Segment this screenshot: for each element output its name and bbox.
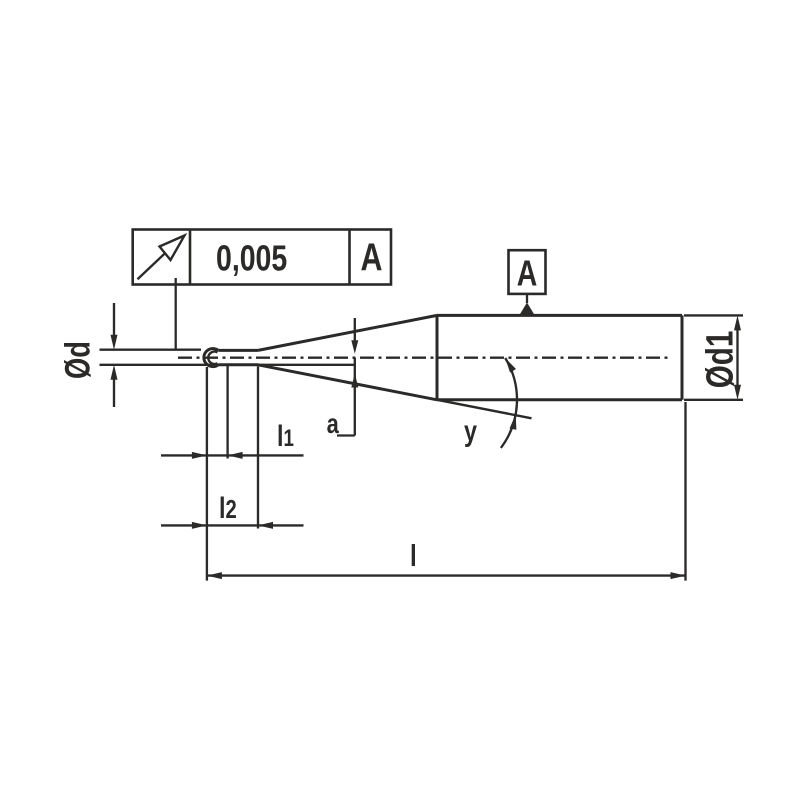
svg-text:l: l — [410, 538, 417, 573]
svg-text:Ød: Ød — [58, 341, 97, 379]
svg-text:0,005: 0,005 — [216, 237, 287, 278]
svg-text:y: y — [464, 414, 477, 447]
svg-text:A: A — [517, 252, 538, 293]
svg-text:A: A — [361, 236, 383, 279]
svg-text:l1: l1 — [277, 419, 294, 452]
svg-text:l2: l2 — [219, 491, 237, 524]
svg-text:Ød1: Ød1 — [699, 331, 741, 389]
svg-text:a: a — [327, 408, 340, 439]
